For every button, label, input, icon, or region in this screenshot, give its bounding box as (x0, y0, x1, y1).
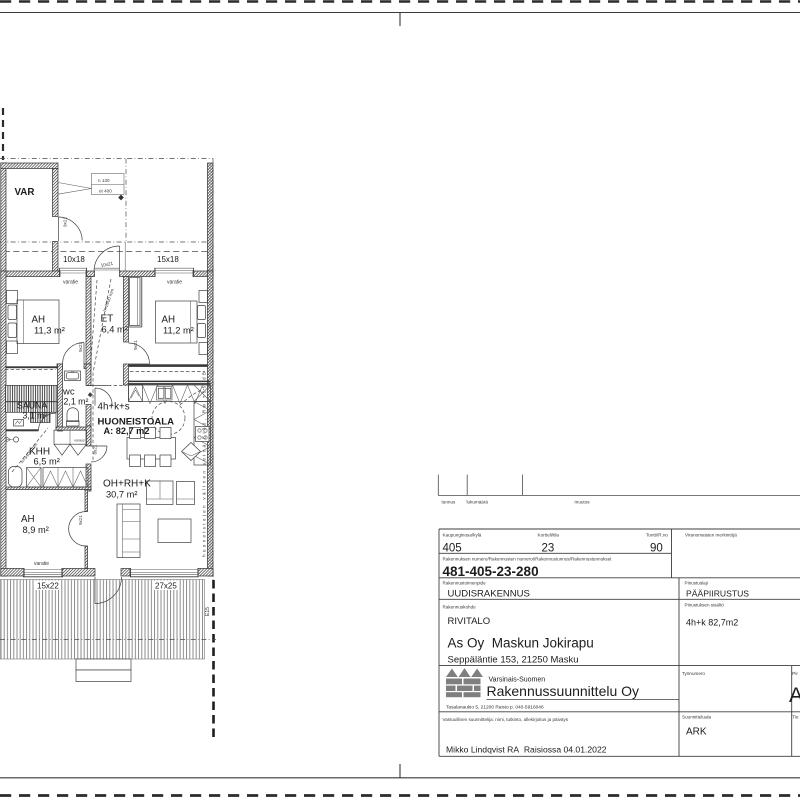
svg-text:23: 23 (542, 543, 555, 555)
svg-text:3,1 m²: 3,1 m² (23, 411, 48, 421)
svg-text:AH: AH (32, 315, 46, 326)
svg-text:Piirustuksen sisältö: Piirustuksen sisältö (685, 603, 725, 608)
svg-text:OH+RH+K: OH+RH+K (103, 479, 151, 490)
svg-text:405: 405 (443, 543, 462, 555)
svg-text:9x21: 9x21 (63, 217, 68, 227)
svg-text:6,5 m²: 6,5 m² (34, 457, 60, 467)
svg-text:varatie: varatie (63, 280, 78, 286)
svg-text:Piirustuslaji: Piirustuslaji (685, 581, 708, 586)
svg-text:4h+k 82,7m2: 4h+k 82,7m2 (686, 618, 738, 628)
svg-text:n 130: n 130 (98, 178, 110, 183)
svg-text:15x18: 15x18 (157, 255, 179, 264)
svg-text:90: 90 (650, 543, 663, 555)
svg-text:27x25: 27x25 (155, 582, 177, 591)
svg-text:4h+k+s: 4h+k+s (98, 402, 130, 413)
svg-text:A: A (789, 684, 800, 707)
svg-text:VAR: VAR (15, 187, 35, 198)
svg-text:A: 82,7 m2: A: 82,7 m2 (104, 426, 150, 436)
svg-text:PÄÄPIIRUSTUS: PÄÄPIIRUSTUS (686, 589, 749, 599)
svg-text:9x21: 9x21 (133, 340, 138, 350)
svg-text:9x21: 9x21 (78, 515, 83, 525)
svg-text:Työnumero: Työnumero (682, 671, 705, 676)
svg-text:UUDISRAKENNUS: UUDISRAKENNUS (448, 589, 530, 600)
svg-text:As Oy Maskun Jokirapu: As Oy Maskun Jokirapu (448, 636, 594, 651)
svg-text:30,7 m²: 30,7 m² (106, 490, 138, 500)
svg-text:Kaupunginosa/kylä: Kaupunginosa/kylä (443, 533, 482, 538)
svg-text:Rakennuksen numero/Rakennusten: Rakennuksen numero/Rakennusten numerot/R… (443, 557, 613, 562)
svg-text:Tie: Tie (792, 715, 799, 720)
svg-text:Tontti/R.no: Tontti/R.no (646, 533, 668, 538)
svg-text:SAUNA: SAUNA (17, 401, 47, 411)
svg-text:481-405-23-280: 481-405-23-280 (443, 564, 539, 579)
svg-text:Pir: Pir (792, 671, 798, 676)
svg-text:15x22: 15x22 (37, 582, 59, 591)
svg-text:Kortteli/tila: Kortteli/tila (538, 533, 560, 538)
svg-text:Seppäläntie 153, 21250 Masku: Seppäläntie 153, 21250 Masku (448, 655, 579, 666)
svg-text:lukumäärä: lukumäärä (467, 500, 489, 505)
svg-text:RIVITALO: RIVITALO (448, 616, 491, 627)
svg-text:10x18: 10x18 (63, 255, 85, 264)
svg-text:tunnus: tunnus (442, 500, 456, 505)
svg-text:Rakennussuunnittelu Oy: Rakennussuunnittelu Oy (487, 683, 640, 699)
svg-text:varaus: varaus (74, 439, 85, 443)
svg-text:AH: AH (162, 315, 176, 326)
svg-text:ARK: ARK (686, 727, 707, 738)
svg-text:8,9 m²: 8,9 m² (23, 525, 49, 535)
svg-text:11,2 m²: 11,2 m² (163, 326, 194, 336)
svg-text:Suunnitteluala: Suunnitteluala (682, 715, 712, 720)
svg-text:AH: AH (21, 514, 35, 525)
svg-text:Tasalanaukio 5, 21200 Raisio p: Tasalanaukio 5, 21200 Raisio p. 040-5916… (446, 705, 544, 711)
svg-text:E15: E15 (205, 607, 211, 616)
svg-text:muutos: muutos (575, 500, 591, 505)
svg-text:Mikko Lindqvist RA Raisiossa: Mikko Lindqvist RA Raisiossa 04.01.2022 (446, 745, 607, 755)
svg-text:Viranomaisten merkintöjä: Viranomaisten merkintöjä (685, 533, 737, 538)
svg-text:9x21: 9x21 (78, 342, 83, 352)
svg-text:varatie: varatie (34, 561, 49, 567)
svg-text:et 400: et 400 (99, 189, 112, 194)
svg-text:11,3 m²: 11,3 m² (34, 326, 65, 336)
svg-text:2,1 m²: 2,1 m² (64, 397, 89, 407)
svg-text:6,4 m²: 6,4 m² (102, 325, 128, 335)
svg-text:varatie: varatie (167, 280, 182, 286)
svg-text:Vastuullinen suunnittelija: ni: Vastuullinen suunnittelija: nimi, tutkin… (443, 717, 569, 722)
svg-text:Rakennustoimenpide: Rakennustoimenpide (443, 581, 487, 586)
svg-text:ET: ET (101, 314, 114, 325)
svg-text:Rakennuskohde: Rakennuskohde (443, 605, 477, 610)
